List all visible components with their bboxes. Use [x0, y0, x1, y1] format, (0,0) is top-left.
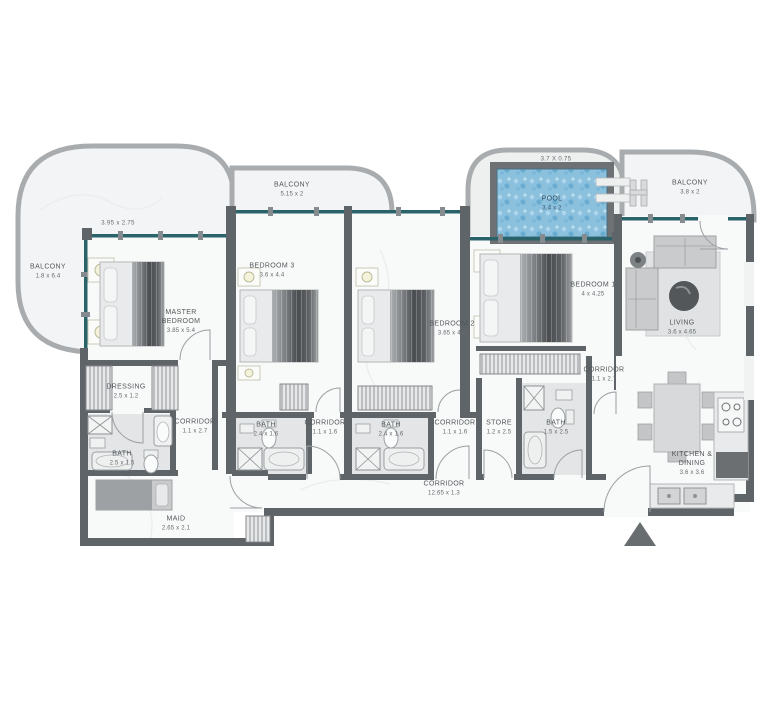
wardrobe — [480, 354, 580, 374]
corridor-left-name: CORRIDOR — [175, 418, 216, 427]
bedroom2-label: BEDROOM 2 3.65 x 4.4 — [429, 320, 474, 337]
master-bath-name: BATH — [110, 450, 135, 459]
coffee-table — [669, 281, 699, 311]
bath2-dims: 2.4 x 1.6 — [379, 431, 404, 439]
kitchen-dining-name: KITCHEN & DINING — [666, 451, 718, 469]
bath2-name: BATH — [379, 421, 404, 430]
balcony-right-name: BALCONY — [672, 179, 708, 188]
bedroom1-name: BEDROOM 1 — [570, 281, 615, 290]
store-name: STORE — [486, 419, 512, 428]
living-name: LIVING — [668, 319, 696, 328]
bedroom2-dims: 3.65 x 4.4 — [429, 330, 474, 338]
pool-step — [596, 194, 630, 202]
master-bath-label: BATH 2.5 x 1.5 — [110, 450, 135, 467]
balcony-right-dims: 3.8 x 2 — [672, 189, 708, 197]
wardrobe — [358, 386, 432, 410]
bath3-dims: 2.4 x 1.6 — [254, 431, 279, 439]
closet — [246, 516, 270, 542]
master-bedroom-name: MASTER BEDROOM — [153, 309, 209, 327]
wardrobe — [152, 366, 178, 410]
pool-label: POOL 3.4 x 2 — [542, 195, 563, 212]
pool-name: POOL — [542, 195, 563, 204]
bedroom2-name: BEDROOM 2 — [429, 320, 474, 329]
corridor-long-label: CORRIDOR 12.65 x 1.3 — [424, 480, 465, 497]
bedroom3-dims: 3.6 x 4.4 — [249, 272, 294, 280]
bedroom3-label: BEDROOM 3 3.6 x 4.4 — [249, 262, 294, 279]
bedroom1-dims: 4 x 4.25 — [570, 291, 615, 299]
balcony-left-dims: 1.8 x 6.4 — [30, 273, 66, 281]
dressing-dims: 2.5 x 1.2 — [106, 393, 145, 401]
sofa — [654, 236, 716, 268]
maid-name: MAID — [162, 515, 190, 524]
corridor-small1-dims: 1.1 x 1.6 — [305, 429, 346, 437]
corridor-left-dims: 1.1 x 2.7 — [175, 428, 216, 436]
maid-bed — [96, 480, 172, 510]
bath1-dims: 1.5 x 2.5 — [544, 429, 569, 437]
wardrobe — [280, 384, 308, 410]
bedroom3-name: BEDROOM 3 — [249, 262, 294, 271]
stove-icon — [718, 398, 744, 432]
balcony-top-dims: 5.15 x 2 — [274, 191, 310, 199]
kitchen-dining-label: KITCHEN & DINING 3.6 x 3.6 — [666, 451, 718, 477]
store-label: STORE 1.2 x 2.5 — [486, 419, 512, 436]
floor-plan-drawing — [0, 0, 766, 727]
store-dims: 1.2 x 2.5 — [486, 429, 512, 437]
bath2-label: BATH 2.4 x 1.6 — [379, 421, 404, 438]
corridor-small2-name: CORRIDOR — [435, 419, 476, 428]
bedroom1-bed — [474, 250, 572, 342]
corridor-right-dims: 1.1 x 2.7 — [584, 376, 625, 384]
corridor-left-label: CORRIDOR 1.1 x 2.7 — [175, 418, 216, 435]
bath1-label: BATH 1.5 x 2.5 — [544, 419, 569, 436]
corridor-long-dims: 12.65 x 1.3 — [424, 490, 465, 498]
floor-plan: BALCONY 1.8 x 6.4 3.95 x 2.75 BALCONY 5.… — [0, 0, 766, 727]
balcony-top-name: BALCONY — [274, 181, 310, 190]
balcony-top-band — [232, 168, 392, 213]
corridor-right-name: CORRIDOR — [584, 366, 625, 375]
sofa — [626, 268, 658, 330]
living-label: LIVING 3.6 x 4.65 — [668, 319, 696, 336]
master-bath-dims: 2.5 x 1.5 — [110, 460, 135, 468]
balcony-right-label: BALCONY 3.8 x 2 — [672, 179, 708, 196]
bedroom1-label: BEDROOM 1 4 x 4.25 — [570, 281, 615, 298]
corridor-small1-label: CORRIDOR 1.1 x 1.6 — [305, 419, 346, 436]
living-dims: 3.6 x 4.65 — [668, 329, 696, 337]
kitchen-dining-dims: 3.6 x 3.6 — [666, 470, 718, 478]
master-bedroom-label: MASTER BEDROOM 3.85 x 5.4 — [153, 309, 209, 335]
corridor-right-label: CORRIDOR 1.1 x 2.7 — [584, 366, 625, 383]
corridor-small1-name: CORRIDOR — [305, 419, 346, 428]
bath3-label: BATH 2.4 x 1.6 — [254, 421, 279, 438]
pool-dims: 3.4 x 2 — [542, 205, 563, 213]
bath1-name: BATH — [544, 419, 569, 428]
maid-label: MAID 2.65 x 2.1 — [162, 515, 190, 532]
master-bedroom-dims: 3.85 x 5.4 — [153, 328, 209, 336]
living-balcony-door-gap — [698, 215, 728, 222]
balcony-top-label: BALCONY 5.15 x 2 — [274, 181, 310, 198]
dressing-label: DRESSING 2.5 x 1.2 — [106, 383, 145, 400]
corridor-small2-label: CORRIDOR 1.1 x 1.6 — [435, 419, 476, 436]
entrance-arrow-icon — [624, 522, 656, 546]
corridor-small2-dims: 1.1 x 1.6 — [435, 429, 476, 437]
dressing-name: DRESSING — [106, 383, 145, 392]
dining-table — [654, 384, 700, 452]
balcony-left-name: BALCONY — [30, 263, 66, 272]
bath3-name: BATH — [254, 421, 279, 430]
pool-deck-dimension-label: 3.7 X 0.75 — [541, 156, 572, 164]
wing-dimension-label: 3.95 x 2.75 — [101, 220, 135, 228]
fridge — [716, 452, 748, 478]
balcony-left-label: BALCONY 1.8 x 6.4 — [30, 263, 66, 280]
pool-step — [596, 178, 630, 186]
corridor-long-name: CORRIDOR — [424, 480, 465, 489]
maid-dims: 2.65 x 2.1 — [162, 525, 190, 533]
